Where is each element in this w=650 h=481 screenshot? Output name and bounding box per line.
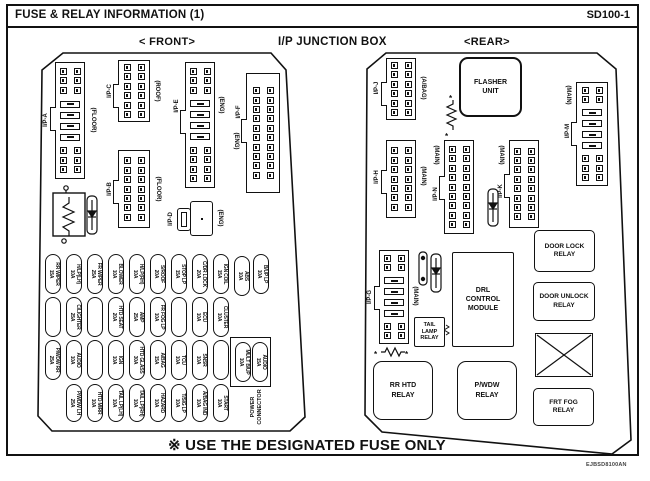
pin: [138, 111, 145, 118]
pin: [582, 155, 589, 162]
pin-row: [582, 87, 603, 94]
fuse-slot: [60, 101, 80, 108]
pin: [384, 264, 391, 271]
pin: [463, 174, 470, 181]
connector-location-ip-n: (MAIN): [433, 145, 439, 164]
pin: [204, 87, 211, 94]
pin: [398, 264, 405, 271]
pin-row: [124, 64, 145, 71]
pin: [384, 255, 391, 262]
fuse-fr-wiper: FR WIPER25A: [87, 254, 103, 294]
fuse-tcu: TCU10A: [171, 340, 187, 380]
pin: [596, 87, 603, 94]
pin: [514, 148, 521, 155]
pin: [398, 332, 405, 339]
pin: [405, 185, 412, 192]
pin: [267, 153, 274, 160]
fuse-slot: [582, 109, 602, 116]
pin: [190, 147, 197, 154]
pin-row: [514, 176, 535, 183]
fuse-tail-lp-rh: TAIL LP(RH)10A: [129, 384, 145, 422]
pin: [405, 100, 412, 107]
pin-block: [60, 146, 81, 174]
pin: [138, 195, 145, 202]
pin: [267, 115, 274, 122]
fuse-abs: ABS10A: [234, 256, 250, 296]
pin: [528, 185, 535, 192]
fuse-audio-15: AUDIO15A: [252, 342, 268, 382]
connector-ip-b: [118, 150, 150, 228]
connector-label-ip-g: I/P-G: [367, 290, 373, 304]
pin: [449, 155, 456, 162]
fuse-abag: A/BAG15A: [150, 340, 166, 380]
pin-row: [391, 194, 412, 201]
pin: [405, 71, 412, 78]
fuse-ign: IGN10A: [108, 340, 124, 380]
power-connector-label: POWERCONNECTOR: [250, 389, 264, 424]
pin-row: [190, 68, 211, 75]
pin: [204, 68, 211, 75]
pin-row: [514, 157, 535, 164]
connector-location-ip-e: (ENG): [218, 97, 224, 114]
fuse-tsig-lp: T/SIG LP10A: [171, 384, 187, 422]
fuse-abag-ind: A/BAG IND10A: [192, 384, 208, 422]
pin: [74, 157, 81, 164]
pin: [514, 157, 521, 164]
pin-row: [124, 102, 145, 109]
pin: [253, 172, 260, 179]
pin-row: [384, 255, 405, 262]
fuse-slot: [190, 100, 210, 107]
fuse-pwdw-rr: P/WDW RR25A: [45, 340, 61, 380]
pin-row: [449, 184, 470, 191]
pin: [124, 102, 131, 109]
pin: [405, 194, 412, 201]
pin-row: [391, 166, 412, 173]
pin: [596, 96, 603, 103]
pin-row: [514, 148, 535, 155]
fuse-slot: [582, 120, 602, 127]
pin: [405, 166, 412, 173]
pin-block: [124, 63, 145, 119]
pin: [253, 115, 260, 122]
pin-row: [253, 144, 274, 151]
pin: [405, 62, 412, 69]
pin: [124, 64, 131, 71]
pin: [463, 155, 470, 162]
title-bar: FUSE & RELAY INFORMATION (1) SD100-1: [6, 4, 639, 28]
pin: [391, 147, 398, 154]
pin: [204, 166, 211, 173]
pin: [405, 109, 412, 116]
pin: [384, 323, 391, 330]
fuse-htd-seat: HTD SEAT20A: [108, 297, 124, 337]
connector-label-ip-f: I/P-F: [236, 106, 242, 119]
pin: [190, 156, 197, 163]
pin: [514, 185, 521, 192]
pin: [190, 175, 197, 182]
pin: [138, 204, 145, 211]
fuse-audio-10: AUDIO10A: [66, 340, 82, 380]
pin: [190, 166, 197, 173]
pin: [138, 64, 145, 71]
pin: [267, 172, 274, 179]
pin-row: [124, 83, 145, 90]
fuse-sroof: S/ROOF20A: [150, 254, 166, 294]
pin: [405, 81, 412, 88]
connector-ip-f: [246, 73, 280, 193]
pin-row: [391, 62, 412, 69]
fuse-stop-lp: STOP LP15A: [171, 254, 187, 294]
pin: [60, 147, 67, 154]
pin: [138, 214, 145, 221]
pin-block: [253, 86, 274, 180]
fuse-slot: [190, 133, 210, 140]
pin-row: [253, 172, 274, 179]
pin: [190, 68, 197, 75]
pin-row: [391, 147, 412, 154]
pin: [405, 147, 412, 154]
rr-htd-relay: RR HTD RELAY: [373, 361, 433, 420]
pin-row: [190, 87, 211, 94]
connector-ip-e: [185, 62, 215, 188]
fuse-slot: [60, 123, 80, 130]
pin: [74, 147, 81, 154]
pin-row: [582, 165, 603, 172]
pin-row: [124, 73, 145, 80]
fuse-slot: [384, 310, 404, 317]
pin: [124, 73, 131, 80]
pin: [514, 195, 521, 202]
pin: [124, 186, 131, 193]
pin: [528, 213, 535, 220]
pin-block: [60, 67, 81, 95]
pin-row: [449, 202, 470, 209]
pin: [391, 109, 398, 116]
pin: [267, 162, 274, 169]
pin: [124, 204, 131, 211]
connector-location-ip-k: (MAIN): [498, 145, 504, 164]
pin-row: [124, 167, 145, 174]
pin-block: [384, 254, 405, 273]
pin: [253, 97, 260, 104]
connector-label-ip-n: I/P-N: [433, 187, 439, 201]
connector-ip-d-terminal: [181, 212, 187, 227]
pin-block: [124, 156, 145, 222]
pin-row: [391, 81, 412, 88]
pin-row: [124, 176, 145, 183]
connector-label-ip-e: I/P-E: [174, 99, 180, 112]
pin: [124, 176, 131, 183]
slot-block: [582, 107, 602, 151]
fuse-ecu: ECU10A: [192, 297, 208, 337]
pin: [528, 157, 535, 164]
fuse-slot: [190, 122, 210, 129]
connector-location-ip-m: (MAIN): [565, 85, 571, 104]
pin-row: [124, 195, 145, 202]
pin: [60, 166, 67, 173]
connector-location-ip-b: (FLOOR): [155, 177, 161, 202]
pin: [124, 92, 131, 99]
connector-label-ip-k: I/P-K: [498, 184, 504, 198]
pin-row: [391, 204, 412, 211]
pin-row: [449, 146, 470, 153]
document-code: EJBSD8100AN: [586, 462, 627, 468]
footer-note: ※ USE THE DESIGNATED FUSE ONLY: [168, 436, 446, 454]
pin: [528, 176, 535, 183]
fuse-slot: [60, 112, 80, 119]
pin: [391, 194, 398, 201]
connector-label-ip-h: I/P-H: [374, 170, 380, 184]
connector-location-ip-g: (MAIN): [412, 286, 418, 305]
fuse-empty: [87, 297, 103, 337]
pin: [384, 332, 391, 339]
connector-location-ip-c: (ROOF): [154, 80, 160, 101]
pin-row: [60, 147, 81, 154]
pin: [582, 87, 589, 94]
pin: [138, 157, 145, 164]
connector-location-ip-d: (ENG): [217, 210, 223, 227]
pin-row: [124, 214, 145, 221]
pin-row: [391, 100, 412, 107]
pin: [74, 68, 81, 75]
manual-page: ** ** ** FUSE & RELAY INFORMATION (1) SD…: [0, 0, 650, 481]
pin-block: [582, 86, 603, 105]
connector-ip-a: [55, 62, 85, 179]
junction-box-header: I/P JUNCTION BOX: [278, 36, 387, 48]
pin: [267, 144, 274, 151]
pin: [398, 255, 405, 262]
pin-block: [391, 61, 412, 117]
pin-row: [391, 185, 412, 192]
pin: [253, 106, 260, 113]
pin-row: [60, 157, 81, 164]
pin: [596, 165, 603, 172]
pin: [138, 73, 145, 80]
pin-row: [582, 96, 603, 103]
pin-row: [449, 155, 470, 162]
pin: [514, 166, 521, 173]
pin-block: [190, 146, 211, 184]
pin: [463, 193, 470, 200]
slot-block: [190, 98, 210, 142]
pin-row: [253, 115, 274, 122]
pin-row: [124, 157, 145, 164]
fuse-snsr: SNSR10A: [192, 340, 208, 380]
pin: [391, 166, 398, 173]
pin: [253, 144, 260, 151]
pin: [138, 83, 145, 90]
pin: [124, 111, 131, 118]
connector-ip-g: [379, 250, 409, 344]
pin: [267, 134, 274, 141]
pin-row: [60, 68, 81, 75]
fuse-htd-glass: HTD GLASS30A: [129, 340, 145, 380]
pin-row: [124, 111, 145, 118]
connector-ip-c: [118, 60, 150, 122]
fuse-ign-coil: IGN COIL15A: [213, 254, 229, 294]
pin-row: [391, 109, 412, 116]
pin: [463, 221, 470, 228]
pin: [391, 81, 398, 88]
pin: [253, 134, 260, 141]
pin: [449, 202, 456, 209]
pin: [267, 106, 274, 113]
pin: [449, 184, 456, 191]
pin: [190, 77, 197, 84]
pin-row: [384, 332, 405, 339]
pin: [463, 146, 470, 153]
fuse-empty: [213, 340, 229, 380]
pin-row: [449, 165, 470, 172]
pin: [582, 174, 589, 181]
pin-row: [391, 90, 412, 97]
door-lock-relay: DOOR LOCK RELAY: [534, 230, 595, 272]
pin-row: [60, 77, 81, 84]
pin: [582, 165, 589, 172]
pin: [138, 176, 145, 183]
pin: [60, 157, 67, 164]
pin-row: [60, 166, 81, 173]
pin-row: [391, 157, 412, 164]
pin-row: [514, 204, 535, 211]
pin: [391, 90, 398, 97]
fuse-slot: [582, 142, 602, 149]
tail-lamp-relay: TAIL LAMP RELAY: [414, 317, 445, 347]
flasher-unit: FLASHER UNIT: [459, 57, 522, 117]
pin: [514, 204, 521, 211]
pin-row: [514, 195, 535, 202]
pin-row: [449, 174, 470, 181]
pin: [449, 212, 456, 219]
pin-row: [124, 186, 145, 193]
slot-block: [384, 275, 404, 319]
pin-block: [514, 147, 535, 222]
pin-row: [384, 264, 405, 271]
pin: [463, 202, 470, 209]
pin: [449, 174, 456, 181]
pin: [138, 167, 145, 174]
pin: [449, 165, 456, 172]
fuse-htd-mirr: HTD MIRR10A: [87, 384, 103, 422]
pin-row: [384, 323, 405, 330]
pin: [124, 167, 131, 174]
pin: [74, 77, 81, 84]
pin: [449, 221, 456, 228]
pin-row: [253, 153, 274, 160]
pin-row: [391, 71, 412, 78]
fuse-clighter: C/LIGHTER25A: [66, 297, 82, 337]
pin-block: [391, 146, 412, 212]
pin-row: [582, 155, 603, 162]
pin: [391, 204, 398, 211]
connector-ip-k: [509, 140, 539, 228]
pin-row: [582, 174, 603, 181]
pin: [60, 68, 67, 75]
slot-block: [60, 99, 80, 143]
pin: [204, 175, 211, 182]
pin: [124, 157, 131, 164]
pin: [74, 87, 81, 94]
pin: [253, 153, 260, 160]
connector-label-ip-a: I/P-A: [43, 113, 49, 127]
fuse-start: START10A: [213, 384, 229, 422]
connector-label-ip-m: I/P-M: [565, 124, 571, 138]
pin-row: [253, 87, 274, 94]
rear-section-header: <REAR>: [464, 36, 510, 48]
pin: [582, 96, 589, 103]
pin-row: [391, 176, 412, 183]
pin-row: [190, 175, 211, 182]
frt-fog-relay: FRT FOG RELAY: [533, 388, 594, 426]
pin: [138, 186, 145, 193]
pin-row: [190, 156, 211, 163]
fuse-blower: BLOWER10A: [108, 254, 124, 294]
pin: [528, 204, 535, 211]
connector-ip-d: [190, 201, 213, 236]
pin: [449, 146, 456, 153]
pin-row: [253, 125, 274, 132]
fuse-slot: [190, 111, 210, 118]
pin: [267, 125, 274, 132]
fuse-hlp-lh: H/LP(LH)10A: [66, 254, 82, 294]
fuse-hazard: HAZARD10A: [150, 384, 166, 422]
connector-ip-n: [444, 140, 474, 234]
pin: [463, 165, 470, 172]
pin-block: [582, 154, 603, 182]
pin-row: [514, 185, 535, 192]
pin: [528, 195, 535, 202]
empty-relay-slot: [535, 333, 593, 377]
pin: [463, 212, 470, 219]
fuse-slot: [384, 277, 404, 284]
pin: [124, 214, 131, 221]
pin: [190, 87, 197, 94]
front-section-header: < FRONT>: [139, 36, 195, 48]
pin: [253, 162, 260, 169]
pin: [391, 176, 398, 183]
fuse-empty: [87, 340, 103, 380]
fuse-cluster: CLUSTER10A: [213, 297, 229, 337]
pin: [253, 125, 260, 132]
fuse-mult-bup: MULT B/UP10A: [235, 342, 251, 382]
pin: [124, 195, 131, 202]
pin: [514, 213, 521, 220]
pin: [74, 166, 81, 173]
page-title: FUSE & RELAY INFORMATION (1): [6, 9, 204, 21]
pin: [253, 87, 260, 94]
fuse-slot: [384, 288, 404, 295]
pin: [60, 87, 67, 94]
door-unlock-relay: DOOR UNLOCK RELAY: [533, 282, 595, 321]
connector-label-ip-b: I/P-B: [107, 182, 113, 196]
pin-row: [253, 162, 274, 169]
pin: [60, 77, 67, 84]
pin: [124, 83, 131, 90]
fuse-empty: [171, 297, 187, 337]
drl-control-module: DRL CONTROL MODULE: [452, 252, 514, 347]
fuse-slot: [582, 131, 602, 138]
pin: [138, 92, 145, 99]
pin: [449, 193, 456, 200]
pin-row: [124, 204, 145, 211]
pin-row: [449, 212, 470, 219]
pin-row: [253, 97, 274, 104]
fuse-cdr-lock: C/DR LOCK20A: [192, 254, 208, 294]
pin: [138, 102, 145, 109]
pin-row: [190, 147, 211, 154]
pin: [398, 323, 405, 330]
